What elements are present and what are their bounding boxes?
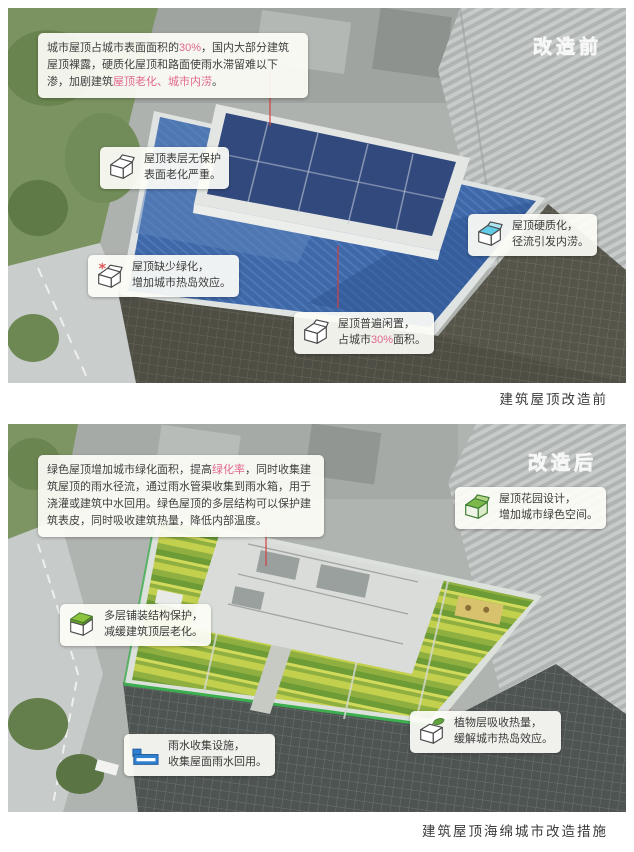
annotation-roof-hardened: 屋顶硬质化，径流引发内涝。: [468, 214, 597, 256]
intro-callout-before: 城市屋顶占城市表面面积的30%，国内大部分建筑屋顶裸露，硬质化屋顶和路面使雨水滞…: [38, 33, 308, 98]
annotation-roof-aging: 屋顶表层无保护表面老化严重。: [100, 147, 229, 189]
annotation-roof-garden: 屋顶花园设计，增加城市绿色空间。: [455, 487, 606, 529]
intro-callout-after: 绿色屋顶增加城市绿化面积，提高绿化率，同时收集建筑屋顶的雨水径流，通过雨水管渠收…: [38, 455, 324, 537]
annotation-text: 雨水收集设施，收集屋面雨水回用。: [168, 739, 267, 771]
annotation-text: 屋顶硬质化，径流引发内涝。: [512, 219, 589, 251]
caption-after: 建筑屋顶海绵城市改造措施: [422, 820, 608, 840]
annotation-text: 多层铺装结构保护，减缓建筑顶层老化。: [104, 609, 203, 641]
annotation-text: 屋顶花园设计，增加城市绿色空间。: [499, 492, 598, 524]
cube-icon: [300, 319, 331, 346]
annotation-text: 屋顶缺少绿化，增加城市热岛效应。: [132, 260, 231, 292]
cube-heat-icon: [94, 262, 125, 289]
annotation-roof-idle: 屋顶普遍闲置，占城市30%面积。: [294, 312, 434, 354]
annotation-plant-layer: 植物层吸收热量，缓解城市热岛效应。: [410, 711, 561, 753]
cube-water-icon: [474, 221, 505, 248]
water-tank-icon: [130, 741, 161, 768]
cube-garden-icon: [461, 494, 492, 521]
cube-layer-icon: [66, 611, 97, 638]
cube-icon: [106, 154, 137, 181]
annotation-roof-no-green: 屋顶缺少绿化，增加城市热岛效应。: [88, 255, 239, 297]
annotation-multi-layer: 多层铺装结构保护，减缓建筑顶层老化。: [60, 604, 211, 646]
annotation-text: 屋顶表层无保护表面老化严重。: [144, 152, 221, 184]
cube-leaf-icon: [416, 718, 447, 745]
annotation-text: 屋顶普遍闲置，占城市30%面积。: [338, 317, 426, 349]
annotation-rain-collection: 雨水收集设施，收集屋面雨水回用。: [124, 734, 275, 776]
watermark-after: 改造后: [528, 448, 597, 475]
annotation-text: 植物层吸收热量，缓解城市热岛效应。: [454, 716, 553, 748]
page: 城市屋顶占城市表面面积的30%，国内大部分建筑屋顶裸露，硬质化屋顶和路面使雨水滞…: [0, 0, 634, 852]
caption-before: 建筑屋顶改造前: [500, 388, 609, 408]
watermark-before: 改造前: [533, 32, 602, 59]
